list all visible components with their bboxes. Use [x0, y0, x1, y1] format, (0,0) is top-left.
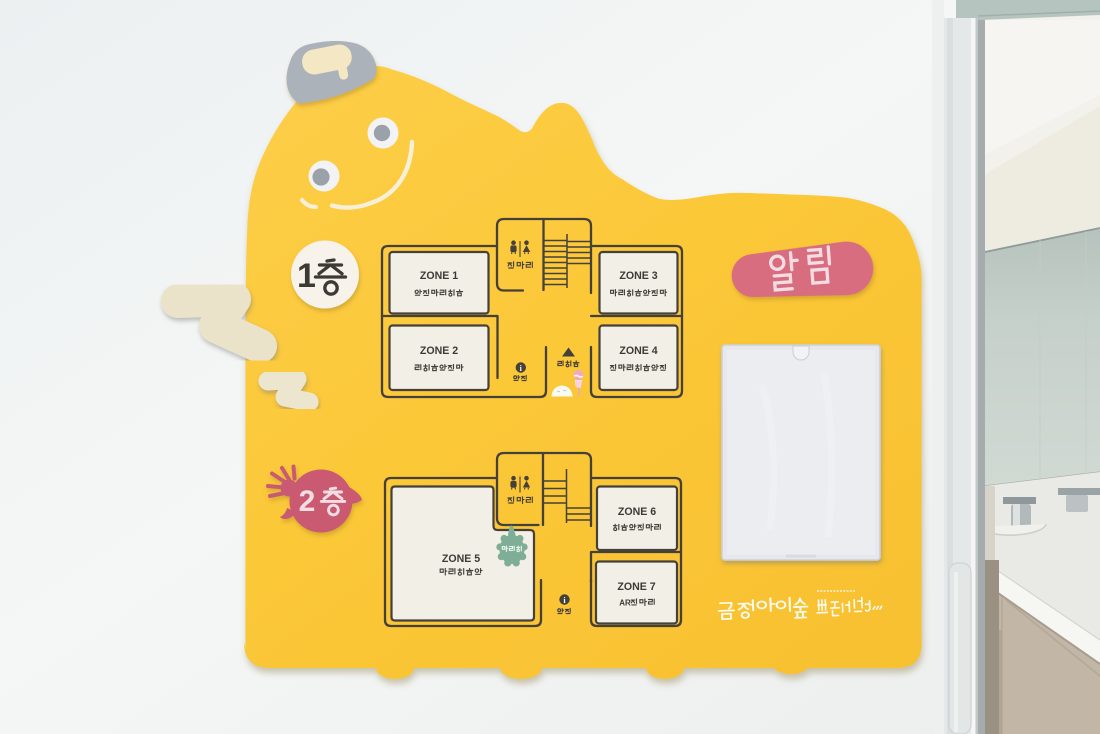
svg-text:1: 1	[297, 257, 316, 295]
svg-text:ZONE 1: ZONE 1	[420, 270, 458, 282]
svg-text:AR: AR	[619, 599, 631, 608]
svg-text:ZONE 4: ZONE 4	[619, 345, 657, 357]
svg-text:2: 2	[299, 485, 316, 518]
svg-text:ZONE 7: ZONE 7	[617, 581, 655, 593]
svg-text:ZONE 6: ZONE 6	[618, 506, 656, 518]
svg-text:ZONE 2: ZONE 2	[420, 345, 458, 357]
svg-text:ZONE 5: ZONE 5	[442, 553, 480, 565]
svg-text:ZONE 3: ZONE 3	[619, 270, 657, 282]
